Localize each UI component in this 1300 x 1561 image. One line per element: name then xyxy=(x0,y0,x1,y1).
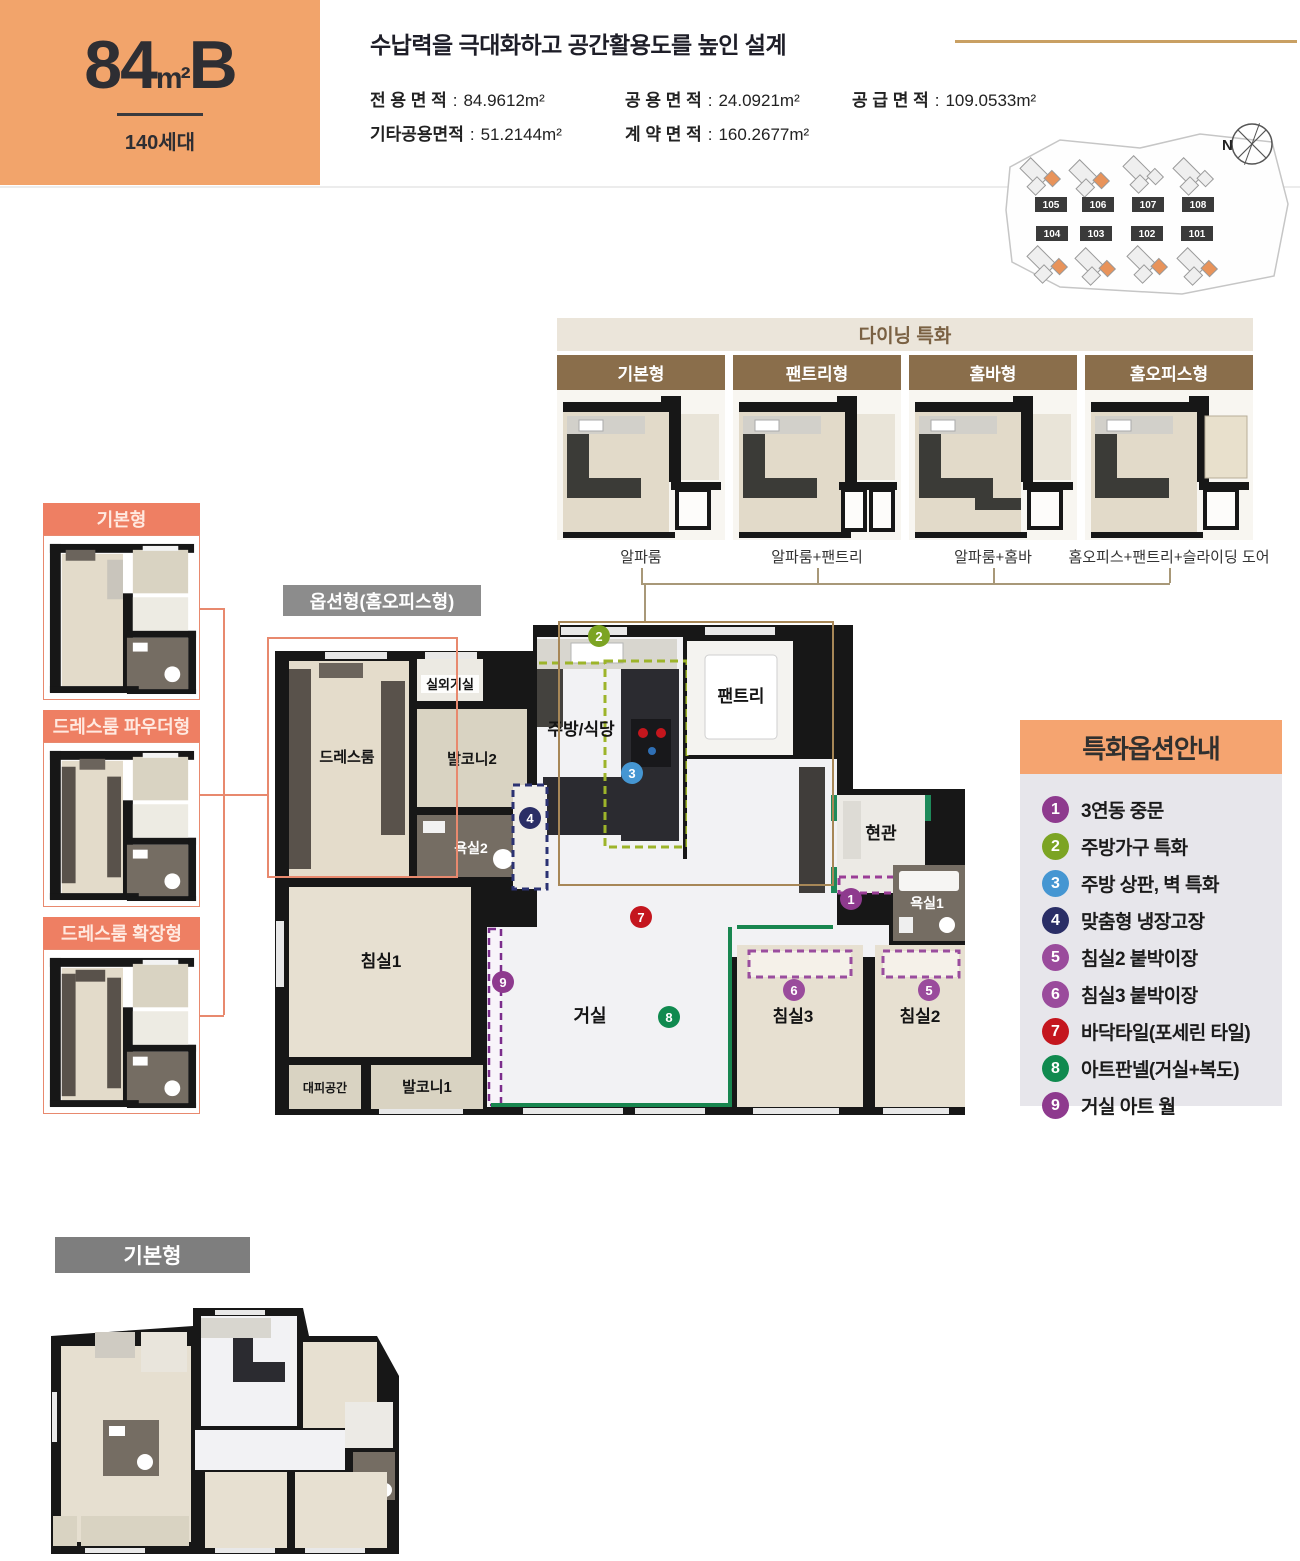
unit-type-box: 84m²B 140세대 xyxy=(0,0,320,185)
dressroom-option-powder-plan xyxy=(43,742,200,907)
dining-connector-tick-2 xyxy=(817,568,819,583)
dining-card-basic-title: 기본형 xyxy=(557,355,725,390)
svg-text:108: 108 xyxy=(1190,200,1207,211)
legend-badge-9: 9 xyxy=(1042,1092,1069,1119)
dressroom-bracket-top xyxy=(200,608,224,610)
label-bed2: 침실2 xyxy=(900,1006,941,1026)
plan-badge-1: 1 xyxy=(840,888,862,910)
dining-card-homeoffice-plan xyxy=(1085,390,1253,540)
legend-item-5: 5침실2 붙박이장 xyxy=(1042,944,1282,971)
label-escape: 대피공간 xyxy=(303,1080,347,1095)
legend-badge-8: 8 xyxy=(1042,1055,1069,1082)
svg-text:4: 4 xyxy=(526,811,534,826)
legend-item-9: 9거실 아트 월 xyxy=(1042,1092,1282,1119)
legend-badge-6: 6 xyxy=(1042,981,1069,1008)
plan-badge-8: 8 xyxy=(658,1006,680,1028)
svg-text:102: 102 xyxy=(1139,229,1156,240)
legend-item-4: 4맞춤형 냉장고장 xyxy=(1042,907,1282,934)
dining-connector-tick-4 xyxy=(1169,568,1171,583)
dining-card-pantry: 팬트리형 xyxy=(733,355,901,545)
main-plan-label: 옵션형(홈오피스형) xyxy=(283,585,481,616)
dining-card-basic-plan xyxy=(557,390,725,540)
label-bath1: 욕실1 xyxy=(910,895,944,911)
brochure-page: 84m²B 140세대 수납력을 극대화하고 공간활용도를 높인 설계 전 용 … xyxy=(0,0,1300,1561)
dressroom-option-basic-plan xyxy=(43,535,200,700)
dining-connector-tick-1 xyxy=(641,568,643,583)
dining-card-homebar-plan xyxy=(909,390,1077,540)
svg-text:5: 5 xyxy=(925,983,932,998)
dressroom-option-extended-title: 드레스룸 확장형 xyxy=(43,917,200,949)
dining-option-outline xyxy=(558,621,834,886)
dressroom-option-extended-plan xyxy=(43,949,200,1114)
legend-item-7: 7바닥타일(포세린 타일) xyxy=(1042,1018,1282,1045)
legend-badge-5: 5 xyxy=(1042,944,1069,971)
dressroom-bracket-middle xyxy=(200,794,269,796)
legend-badge-1: 1 xyxy=(1042,796,1069,823)
svg-text:8: 8 xyxy=(665,1010,672,1025)
plan-badge-4: 4 xyxy=(519,807,541,829)
legend-badge-3: 3 xyxy=(1042,870,1069,897)
art-wall-outline xyxy=(489,929,501,1105)
dining-card-basic: 기본형 xyxy=(557,355,725,545)
legend-item-1: 13연동 중문 xyxy=(1042,796,1282,823)
dining-card-pantry-title: 팬트리형 xyxy=(733,355,901,390)
legend-item-3: 3주방 상판, 벽 특화 xyxy=(1042,870,1282,897)
spec-supply-area: 공 급 면 적:109.0533m² xyxy=(852,86,1036,111)
dressroom-option-powder-title: 드레스룸 파우더형 xyxy=(43,710,200,742)
legend-item-2: 2주방가구 특화 xyxy=(1042,833,1282,860)
dining-card-pantry-plan xyxy=(733,390,901,540)
legend-item-6: 6침실3 붙박이장 xyxy=(1042,981,1282,1008)
dressroom-bracket-vertical xyxy=(223,608,225,1015)
dressroom-bracket-bottom xyxy=(200,1015,224,1017)
legend-badge-4: 4 xyxy=(1042,907,1069,934)
svg-text:7: 7 xyxy=(637,910,644,925)
dining-card-homebar: 홈바형 xyxy=(909,355,1077,545)
svg-text:107: 107 xyxy=(1140,200,1157,211)
base-floor-plan xyxy=(45,1302,410,1561)
plan-badge-5: 5 xyxy=(918,979,940,1001)
legend-badge-2: 2 xyxy=(1042,833,1069,860)
svg-text:101: 101 xyxy=(1189,229,1206,240)
label-balcony1: 발코니1 xyxy=(402,1079,452,1096)
type-divider xyxy=(117,113,203,116)
legend-badge-7: 7 xyxy=(1042,1018,1069,1045)
svg-text:104: 104 xyxy=(1044,229,1061,240)
dining-card-homeoffice: 홈오피스형 xyxy=(1085,355,1253,545)
dining-section-title: 다이닝 특화 xyxy=(557,318,1253,351)
svg-text:6: 6 xyxy=(790,983,797,998)
dining-connector-tick-3 xyxy=(993,568,995,583)
base-plan-title: 기본형 xyxy=(55,1237,250,1273)
label-entry: 현관 xyxy=(865,824,897,843)
bed3-closet-outline xyxy=(749,951,851,977)
spec-common-area: 공 용 면 적:24.0921m² xyxy=(625,86,800,111)
plan-badge-7: 7 xyxy=(630,906,652,928)
dressroom-option-outline xyxy=(267,637,458,878)
legend-list: 13연동 중문 2주방가구 특화 3주방 상판, 벽 특화 4맞춤형 냉장고장 … xyxy=(1020,774,1282,1119)
svg-text:N: N xyxy=(1222,137,1233,154)
bed2-closet-outline xyxy=(883,951,959,977)
plan-badge-6: 6 xyxy=(783,979,805,1001)
svg-text:105: 105 xyxy=(1043,200,1060,211)
unit-type-number: 84 xyxy=(84,27,156,103)
dressroom-option-basic-title: 기본형 xyxy=(43,503,200,535)
plan-badge-9: 9 xyxy=(492,971,514,993)
spec-contract-area: 계 약 면 적:160.2677m² xyxy=(625,120,809,145)
dining-connector-drop xyxy=(644,583,646,623)
svg-text:106: 106 xyxy=(1090,200,1107,211)
room-living-floor xyxy=(487,927,731,1107)
label-living: 거실 xyxy=(573,1006,606,1026)
svg-text:9: 9 xyxy=(499,975,506,990)
label-bed1: 침실1 xyxy=(361,951,402,971)
unit-type-suffix: B xyxy=(189,27,236,103)
svg-text:1: 1 xyxy=(847,892,854,907)
title-rule xyxy=(955,40,1297,43)
label-bath2: 욕실2 xyxy=(454,840,488,856)
room-bed1-floor xyxy=(289,887,471,1057)
unit-type-title: 84m²B xyxy=(84,31,235,99)
legend-panel: 특화옵션안내 13연동 중문 2주방가구 특화 3주방 상판, 벽 특화 4맞춤… xyxy=(1020,720,1282,1106)
page-title: 수납력을 극대화하고 공간활용도를 높인 설계 xyxy=(370,26,786,60)
household-count: 140세대 xyxy=(125,126,195,155)
fridge-option-outline xyxy=(513,785,547,889)
dining-connector-horizontal xyxy=(641,583,1170,585)
svg-text:103: 103 xyxy=(1088,229,1105,240)
spec-exclusive-area: 전 용 면 적:84.9612m² xyxy=(370,86,545,111)
label-bed3: 침실3 xyxy=(773,1006,814,1026)
dining-card-homeoffice-title: 홈오피스형 xyxy=(1085,355,1253,390)
dining-caption-homeoffice: 홈오피스+팬트리+슬라이딩 도어 xyxy=(1039,546,1299,567)
legend-title: 특화옵션안내 xyxy=(1020,720,1282,774)
legend-item-8: 8아트판넬(거실+복도) xyxy=(1042,1055,1282,1082)
spec-other-common-area: 기타공용면적:51.2144m² xyxy=(370,120,562,145)
site-plan: 105 106 107 108 104 103 102 101 N xyxy=(1000,112,1296,308)
dining-card-homebar-title: 홈바형 xyxy=(909,355,1077,390)
unit-type-unit: m² xyxy=(156,62,189,95)
